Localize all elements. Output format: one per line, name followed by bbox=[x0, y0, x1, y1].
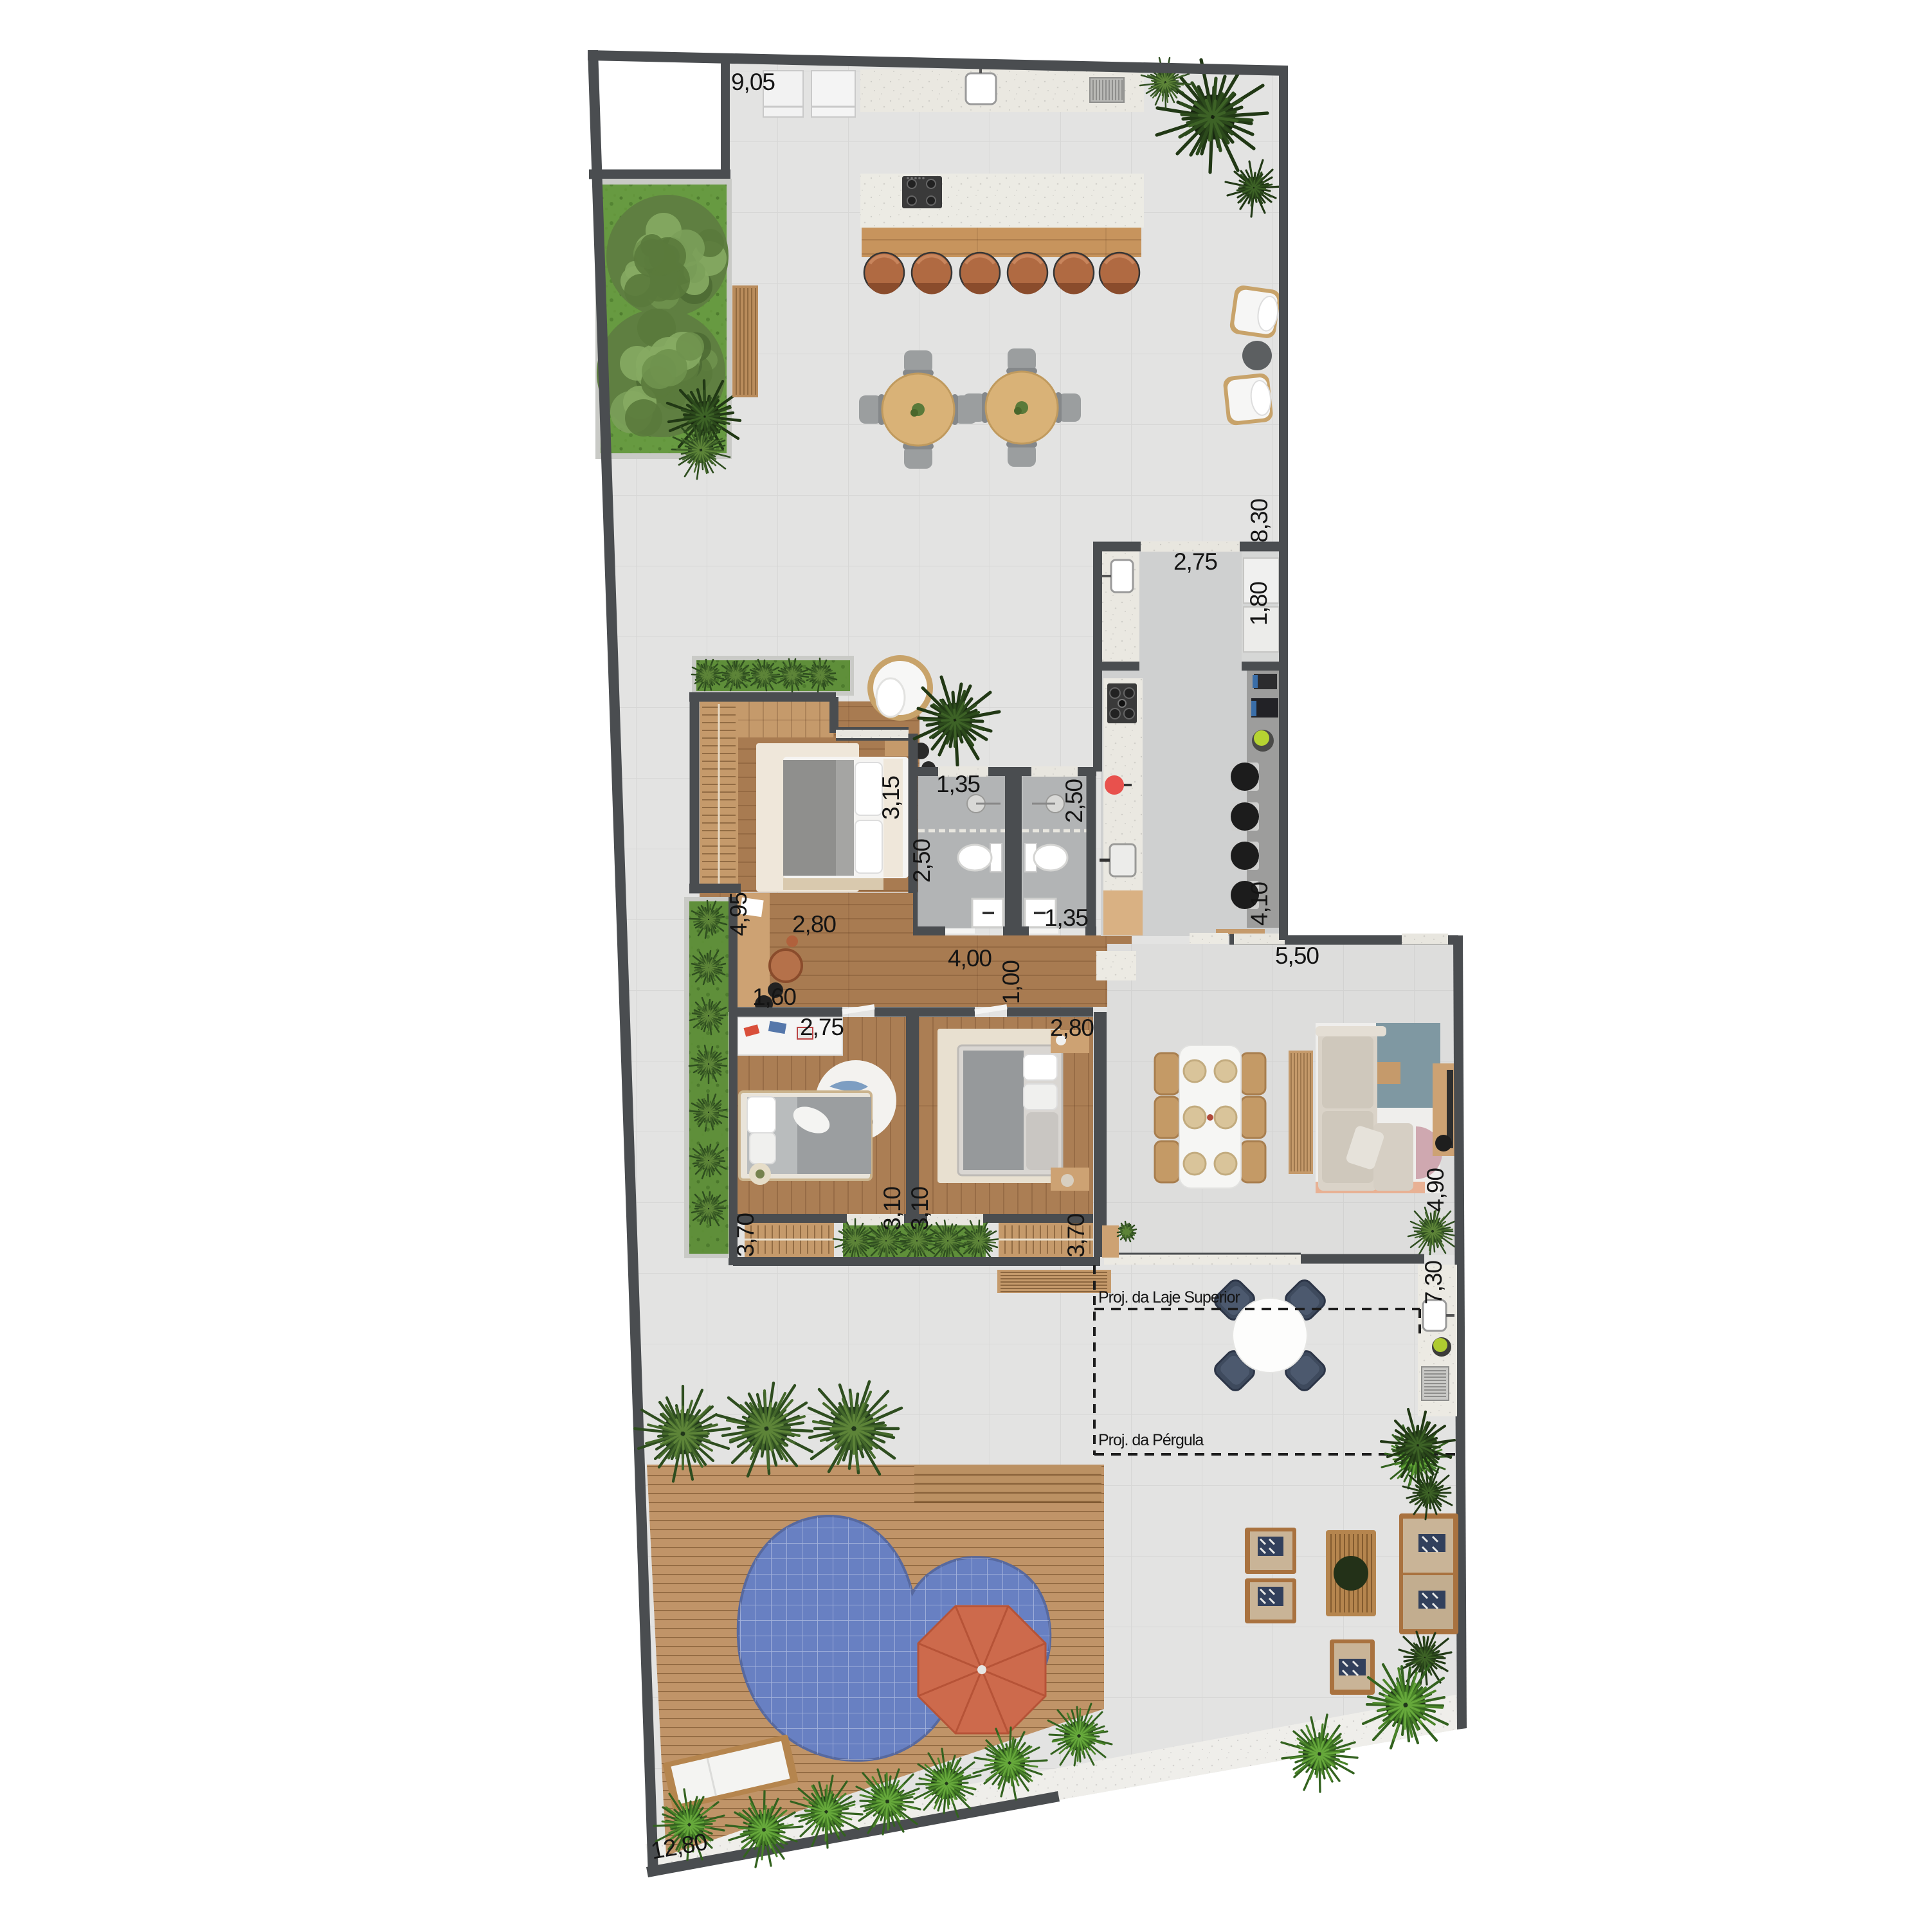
svg-text:3,10: 3,10 bbox=[879, 1187, 905, 1231]
svg-text:3,15: 3,15 bbox=[878, 776, 904, 820]
svg-text:1,35: 1,35 bbox=[1044, 905, 1088, 931]
svg-text:4,10: 4,10 bbox=[1246, 882, 1272, 926]
svg-text:4,90: 4,90 bbox=[1422, 1168, 1449, 1212]
svg-text:8,30: 8,30 bbox=[1246, 499, 1272, 543]
svg-text:2,50: 2,50 bbox=[1061, 779, 1087, 823]
svg-text:1,00: 1,00 bbox=[998, 961, 1024, 1004]
svg-text:2,80: 2,80 bbox=[1050, 1015, 1094, 1041]
svg-text:1,60: 1,60 bbox=[752, 984, 796, 1010]
svg-text:7,30: 7,30 bbox=[1420, 1261, 1447, 1305]
svg-text:4,95: 4,95 bbox=[725, 892, 752, 936]
svg-text:9,05: 9,05 bbox=[731, 69, 775, 95]
svg-text:1,35: 1,35 bbox=[936, 771, 980, 797]
svg-text:3,70: 3,70 bbox=[732, 1213, 759, 1257]
svg-text:3,10: 3,10 bbox=[907, 1187, 933, 1231]
svg-text:Proj. da Laje Superior: Proj. da Laje Superior bbox=[1098, 1288, 1240, 1306]
svg-text:1,80: 1,80 bbox=[1245, 582, 1272, 626]
svg-text:2,75: 2,75 bbox=[800, 1014, 844, 1040]
svg-text:4,00: 4,00 bbox=[948, 945, 992, 971]
svg-text:2,80: 2,80 bbox=[792, 911, 836, 937]
svg-text:5,50: 5,50 bbox=[1275, 943, 1319, 969]
svg-text:2,75: 2,75 bbox=[1173, 548, 1217, 575]
svg-text:2,50: 2,50 bbox=[909, 839, 935, 883]
svg-text:Proj. da Pérgula: Proj. da Pérgula bbox=[1098, 1431, 1204, 1449]
svg-text:3,70: 3,70 bbox=[1063, 1214, 1089, 1258]
